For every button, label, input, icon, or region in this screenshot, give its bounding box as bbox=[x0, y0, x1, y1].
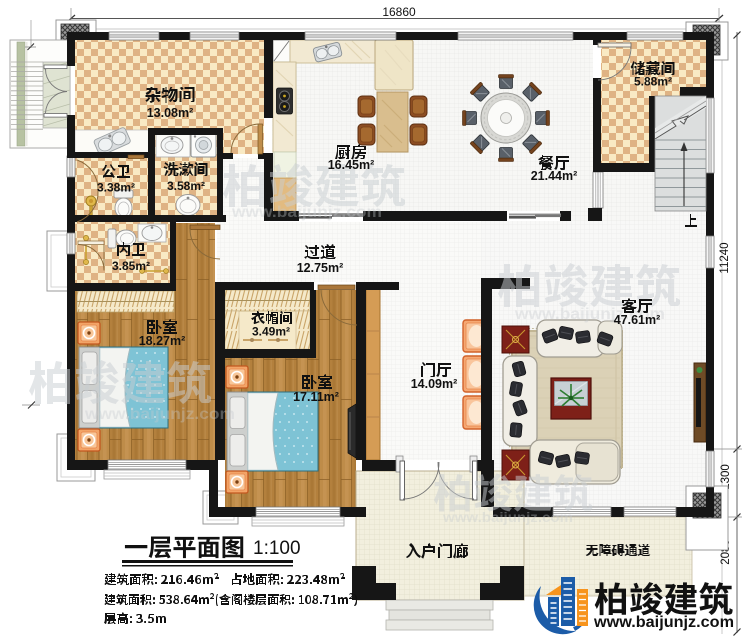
svg-text:3.38m²: 3.38m² bbox=[97, 181, 135, 195]
svg-text:11240: 11240 bbox=[719, 242, 731, 273]
svg-text:16.45m²: 16.45m² bbox=[328, 158, 375, 172]
svg-text:14.09m²: 14.09m² bbox=[411, 377, 458, 391]
svg-text:www.baijunjz.com: www.baijunjz.com bbox=[231, 204, 382, 221]
svg-text:www.baijunjz.com: www.baijunjz.com bbox=[442, 509, 573, 525]
svg-text:5.88m²: 5.88m² bbox=[634, 75, 672, 89]
svg-text:3.49m²: 3.49m² bbox=[252, 325, 290, 339]
svg-text:www.baijunjz.com: www.baijunjz.com bbox=[84, 406, 235, 423]
svg-text:12.75m²: 12.75m² bbox=[297, 261, 344, 275]
svg-text:16860: 16860 bbox=[382, 5, 416, 19]
svg-text:3.85m²: 3.85m² bbox=[112, 259, 150, 273]
svg-text:47.61m²: 47.61m² bbox=[614, 313, 661, 327]
svg-text:3.58m²: 3.58m² bbox=[167, 179, 205, 193]
svg-text:18.27m²: 18.27m² bbox=[139, 334, 186, 348]
svg-text:21.44m²: 21.44m² bbox=[531, 169, 578, 183]
svg-text:www.baijunjz.com: www.baijunjz.com bbox=[593, 614, 734, 631]
svg-text:1:100: 1:100 bbox=[253, 538, 301, 559]
svg-text:13.08m²: 13.08m² bbox=[147, 106, 194, 120]
svg-text:17.11m²: 17.11m² bbox=[293, 390, 339, 404]
